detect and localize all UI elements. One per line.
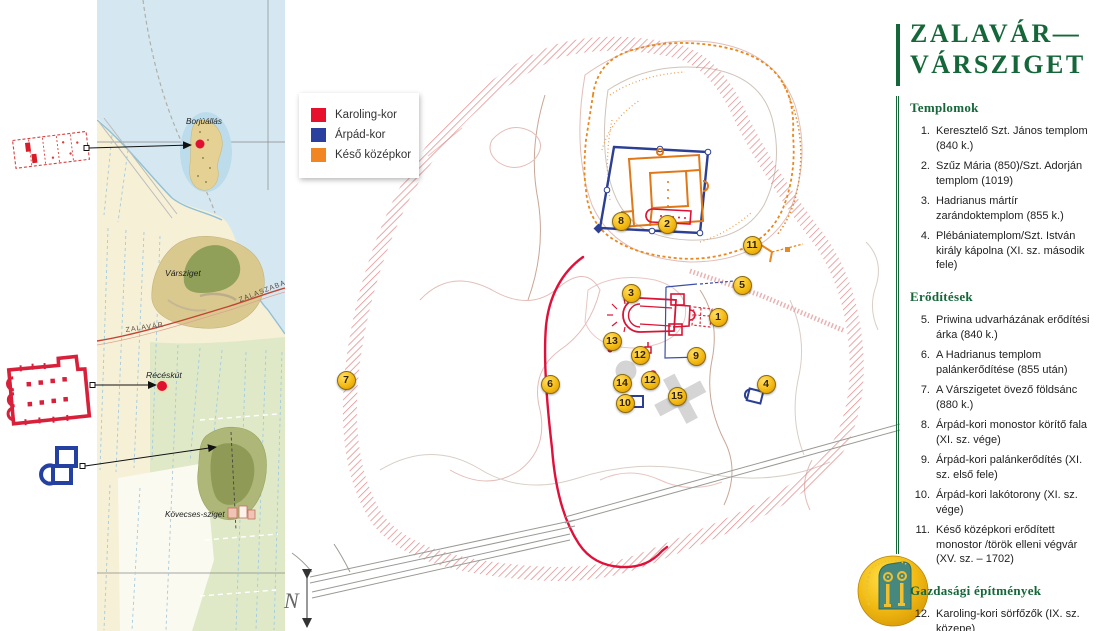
item-text: Keresztelő Szt. János templom (840 k.) bbox=[936, 124, 1098, 153]
item-number: 6. bbox=[910, 348, 930, 377]
legend-entry-6: 6.A Hadrianus templom palánkerődítése (8… bbox=[910, 348, 1098, 377]
item-number: 5. bbox=[910, 313, 930, 342]
legend: Karoling-korÁrpád-korKéső középkor bbox=[299, 93, 419, 178]
borjuallas-site-dot bbox=[196, 140, 205, 149]
legend-entry-4: 4.Plébániatemplom/Szt. István király káp… bbox=[910, 229, 1098, 273]
zalavar-varsziget-poster: Borjúállás Vársziget Récéskút Kövecses-s… bbox=[0, 0, 1100, 631]
hadrianus-church bbox=[607, 294, 695, 335]
legend-entry-7: 7.A Várszigetet övező földsánc (880 k.) bbox=[910, 383, 1098, 412]
label-kovecses: Kövecses-sziget bbox=[165, 510, 225, 519]
map-marker-15: 15 bbox=[668, 387, 687, 406]
legend-swatch-0 bbox=[311, 108, 326, 122]
map-marker-12: 12 bbox=[641, 371, 660, 390]
legend-entry-2: 2.Szűz Mária (850)/Szt. Adorján templom … bbox=[910, 159, 1098, 188]
legend-entry-10: 10.Árpád-kori lakótorony (XI. sz. vége) bbox=[910, 488, 1098, 517]
legend-entry-3: 3.Hadrianus mártír zarándoktemplom (855 … bbox=[910, 194, 1098, 223]
inset-topo-map: Borjúállás Vársziget Récéskút Kövecses-s… bbox=[97, 0, 293, 631]
borjuallas-plan bbox=[13, 131, 90, 168]
item-text: Árpád-kori palánkerődítés (XI. sz. első … bbox=[936, 453, 1098, 482]
item-text: Szűz Mária (850)/Szt. Adorján templom (1… bbox=[936, 159, 1098, 188]
legend-entry-12: 12.Karoling-kori sörfőzők (IX. sz. közep… bbox=[910, 607, 1098, 631]
section-heading-0: Templomok bbox=[910, 100, 1098, 116]
item-number: 11. bbox=[910, 523, 930, 567]
label-borjuallas: Borjúállás bbox=[186, 117, 222, 126]
basilica-crenellation bbox=[21, 362, 68, 425]
panel-header: ZALAVÁR— VÁRSZIGET bbox=[910, 18, 1096, 80]
legend-entry-5: 5.Priwina udvarházának erődítési árka (8… bbox=[910, 313, 1098, 342]
legend-entry-9: 9.Árpád-kori palánkerődítés (XI. sz. els… bbox=[910, 453, 1098, 482]
map-marker-11: 11 bbox=[743, 236, 762, 255]
map-marker-1: 1 bbox=[709, 308, 728, 327]
label-recefkut: Récéskút bbox=[146, 370, 182, 380]
label-varsziget: Vársziget bbox=[165, 268, 201, 278]
legend-swatch-1 bbox=[311, 128, 326, 142]
legend-item: Késő középkor bbox=[311, 148, 409, 162]
item-number: 7. bbox=[910, 383, 930, 412]
item-text: A Hadrianus templom palánkerődítése (855… bbox=[936, 348, 1098, 377]
panel-rule bbox=[896, 96, 899, 554]
legend-item: Árpád-kor bbox=[311, 128, 409, 142]
legend-item: Karoling-kor bbox=[311, 108, 409, 122]
contours bbox=[380, 41, 878, 510]
item-text: Plébániatemplom/Szt. István király kápol… bbox=[936, 229, 1098, 273]
item-number: 9. bbox=[910, 453, 930, 482]
panel-sections: Templomok1.Keresztelő Szt. János templom… bbox=[910, 96, 1098, 631]
item-text: Késő középkori erődített monostor /török… bbox=[936, 523, 1098, 567]
page-title: ZALAVÁR— VÁRSZIGET bbox=[910, 18, 1096, 80]
section-heading-2: Gazdasági építmények bbox=[910, 583, 1098, 599]
map-marker-5: 5 bbox=[733, 276, 752, 295]
north-label: N bbox=[283, 588, 300, 613]
map-marker-3: 3 bbox=[622, 284, 641, 303]
legend-entry-1: 1.Keresztelő Szt. János templom (840 k.) bbox=[910, 124, 1098, 153]
map-marker-7: 7 bbox=[337, 371, 356, 390]
basilica-pillars bbox=[26, 377, 68, 407]
item-number: 4. bbox=[910, 229, 930, 273]
logo-artifact bbox=[879, 562, 911, 609]
legend-list: Karoling-korÁrpád-korKéső középkor bbox=[311, 108, 409, 162]
map-marker-6: 6 bbox=[541, 375, 560, 394]
legend-entry-8: 8.Árpád-kori monostor körítő fala (XI. s… bbox=[910, 418, 1098, 447]
legend-swatch-2 bbox=[311, 148, 326, 162]
map-marker-12: 12 bbox=[631, 346, 650, 365]
map-marker-2: 2 bbox=[658, 215, 677, 234]
recefkut-site-dot bbox=[157, 381, 167, 391]
map-marker-14: 14 bbox=[613, 374, 632, 393]
recefkut-basilica-plan bbox=[5, 356, 89, 426]
hadrianus-palisade-line bbox=[545, 257, 667, 567]
item-text: Priwina udvarházának erődítési árka (840… bbox=[936, 313, 1098, 342]
section-heading-1: Erődítések bbox=[910, 289, 1098, 305]
item-number: 3. bbox=[910, 194, 930, 223]
item-text: Karoling-kori sörfőzők (IX. sz. közepe) bbox=[936, 607, 1098, 631]
item-text: A Várszigetet övező földsánc (880 k.) bbox=[936, 383, 1098, 412]
item-text: Árpád-kori lakótorony (XI. sz. vége) bbox=[936, 488, 1098, 517]
map-marker-9: 9 bbox=[687, 347, 706, 366]
map-marker-8: 8 bbox=[612, 212, 631, 231]
map-marker-10: 10 bbox=[616, 394, 635, 413]
item-number: 1. bbox=[910, 124, 930, 153]
item-text: Hadrianus mártír zarándoktemplom (855 k.… bbox=[936, 194, 1098, 223]
title-bar bbox=[896, 24, 900, 86]
map-marker-13: 13 bbox=[603, 332, 622, 351]
north-arrow: N bbox=[283, 569, 312, 628]
item-number: 12. bbox=[910, 607, 930, 631]
page-title-line2: VÁRSZIGET bbox=[910, 49, 1096, 80]
item-text: Árpád-kori monostor körítő fala (XI. sz.… bbox=[936, 418, 1098, 447]
item-number: 2. bbox=[910, 159, 930, 188]
page-title-line1: ZALAVÁR— bbox=[910, 18, 1096, 49]
map-marker-4: 4 bbox=[757, 375, 776, 394]
legend-entry-11: 11.Késő középkori erődített monostor /tö… bbox=[910, 523, 1098, 567]
earth-rampart-ring bbox=[350, 44, 857, 574]
legend-label-0: Karoling-kor bbox=[335, 109, 397, 121]
legend-label-2: Késő középkor bbox=[335, 149, 411, 161]
item-number: 8. bbox=[910, 418, 930, 447]
chapel-plan-blue bbox=[41, 448, 76, 484]
legend-label-1: Árpád-kor bbox=[335, 129, 386, 141]
item-number: 10. bbox=[910, 488, 930, 517]
